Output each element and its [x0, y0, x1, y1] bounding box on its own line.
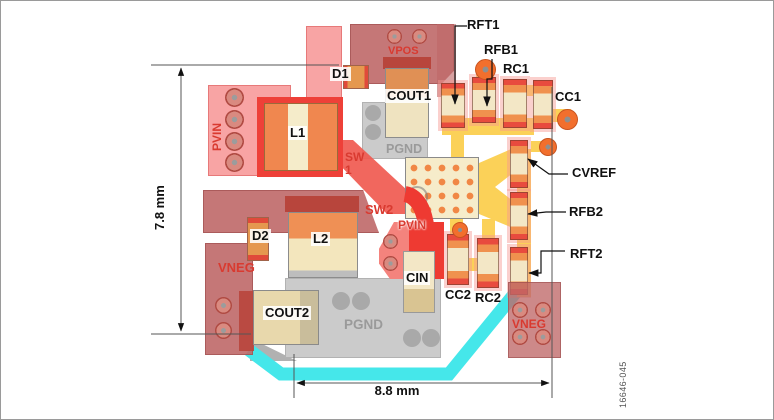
net-sw2: SW2 [365, 203, 393, 217]
pvin-pad-hole [225, 153, 244, 172]
pgnd-hole [332, 292, 350, 310]
rfb1-via [475, 59, 496, 80]
ic-pin1-marker [406, 186, 428, 208]
dimension-width-label: 8.8 mm [357, 384, 437, 398]
callout-rft2: RFT2 [570, 247, 603, 261]
callout-rc1: RC1 [503, 62, 529, 76]
vpos-pad-hole [412, 29, 427, 44]
pvin-pad-hole [225, 88, 244, 107]
cvref-leader [528, 159, 568, 174]
cc2-capacitor [447, 234, 469, 285]
net-pvin-left: PVIN [211, 99, 224, 151]
cvref-capacitor [510, 140, 528, 188]
component-l1: L1 [288, 126, 307, 140]
cout2-dark-bar [239, 291, 254, 351]
pgnd-hole [403, 329, 421, 347]
vneg-right-hole [535, 302, 551, 318]
callout-rfb2: RFB2 [569, 205, 603, 219]
l2-dark-bar [285, 196, 359, 212]
vpos-pad-hole [387, 29, 402, 44]
component-cc2: CC2 [445, 288, 471, 302]
pvin-center-hole [383, 256, 398, 271]
vneg-right-hole [512, 329, 528, 345]
component-cin: CIN [404, 271, 430, 285]
callout-cvref: CVREF [572, 166, 616, 180]
rc1-resistor [503, 79, 527, 128]
pvin-center-hole [383, 234, 398, 249]
dimension-height-label: 7.8 mm [153, 168, 167, 230]
pgnd-top-hole [365, 124, 381, 140]
component-cout1: COUT1 [385, 89, 433, 103]
component-d1: D1 [330, 67, 351, 81]
pgnd-hole [422, 329, 440, 347]
component-d2: D2 [250, 229, 271, 243]
pgnd-hole [352, 292, 370, 310]
component-l2: L2 [311, 232, 330, 246]
component-cout2: COUT2 [263, 306, 311, 320]
callout-rft1: RFT1 [467, 18, 500, 32]
pvin-pad-hole [225, 110, 244, 129]
vneg-left-hole [215, 297, 232, 314]
net-vneg-left: VNEG [218, 261, 255, 275]
net-sw1-line2: 1 [345, 164, 352, 177]
cc1-capacitor [533, 80, 553, 129]
pgnd-top-hole [365, 105, 381, 121]
pvin-pad-hole [225, 132, 244, 151]
cvref-via [539, 138, 557, 156]
figure-number: 16646-045 [619, 338, 629, 408]
net-pgnd-bottom: PGND [344, 318, 383, 333]
vneg-left-hole [215, 322, 232, 339]
callout-cc1: CC1 [555, 90, 581, 104]
net-pgnd-top: PGND [386, 143, 422, 157]
rc2-resistor [477, 238, 499, 288]
vneg-right-hole [512, 302, 528, 318]
vneg-right-hole [535, 329, 551, 345]
net-vneg-right: VNEG [512, 318, 546, 331]
rfb2-leader [528, 212, 566, 214]
rfb1-resistor [472, 77, 496, 123]
component-rc2: RC2 [475, 291, 501, 305]
net-pvin-center: PVIN [398, 219, 426, 232]
pcb-layout-figure: RFT1 RFB1 RC1 CC1 CVREF RFB2 RFT2 VPOS P… [0, 0, 774, 420]
net-vpos: VPOS [388, 45, 419, 57]
rfb2-resistor [510, 192, 528, 240]
chip-bottom-via [452, 222, 468, 238]
cc1-via [557, 109, 578, 130]
callout-rfb1: RFB1 [484, 43, 518, 57]
rft2-leader [529, 251, 565, 273]
rft1-resistor [441, 83, 465, 128]
